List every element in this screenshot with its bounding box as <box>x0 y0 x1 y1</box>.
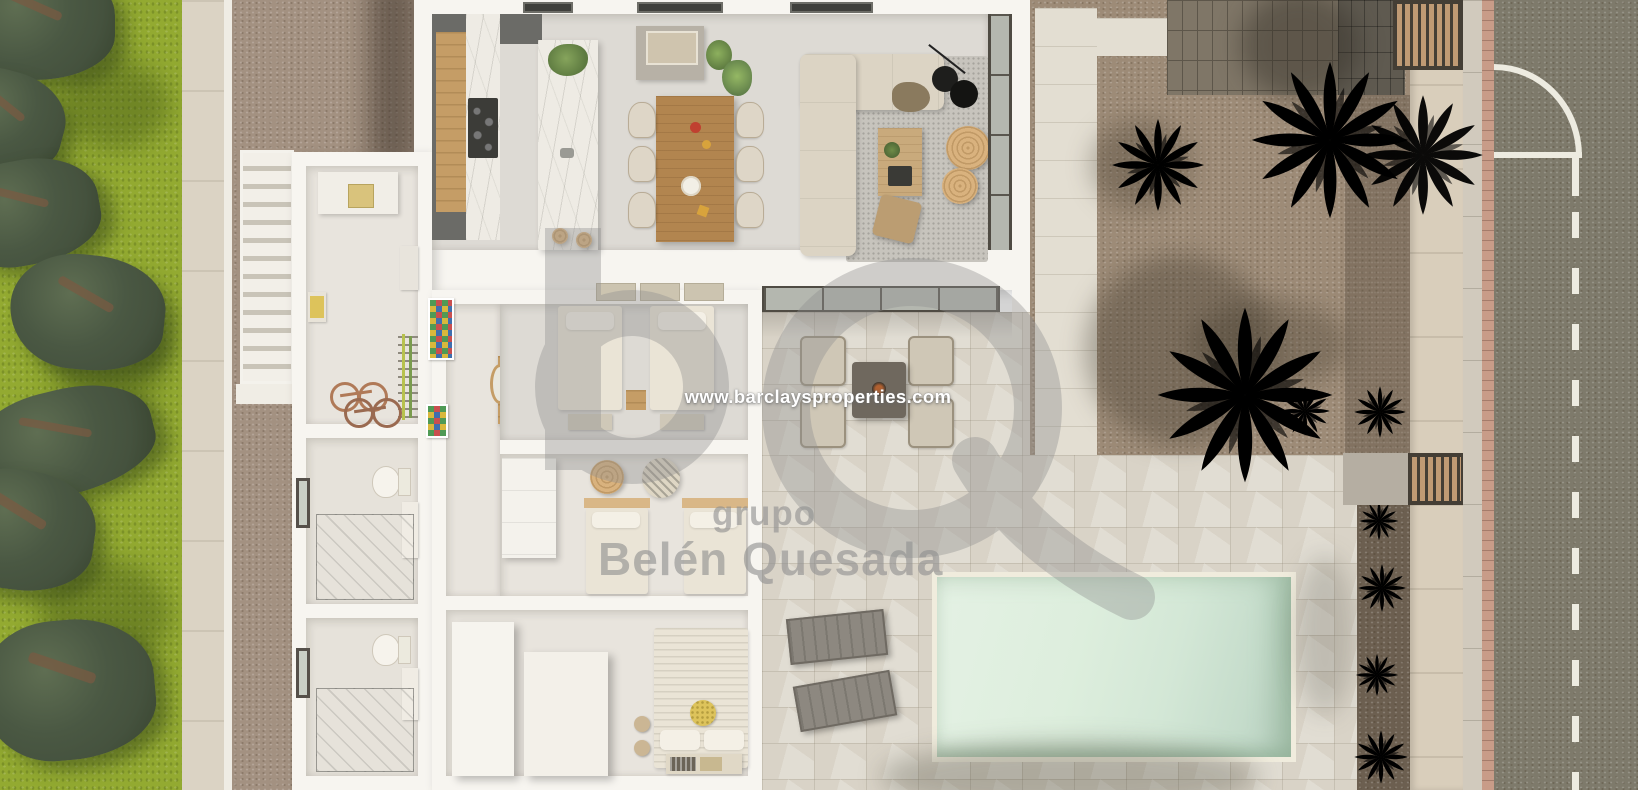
skylight <box>523 2 573 13</box>
shrub <box>1352 384 1408 440</box>
wall-cap-left <box>224 0 232 790</box>
dining-chair <box>736 102 764 138</box>
shrub <box>1354 652 1400 698</box>
toilet-cistern <box>398 468 411 496</box>
road-line-solid <box>1572 158 1579 196</box>
bed-pillow <box>704 730 744 750</box>
bicycle-wheel <box>372 398 402 428</box>
shrub <box>1358 500 1400 542</box>
shrub <box>1356 562 1408 614</box>
ski <box>409 336 412 418</box>
watermark-website: www.barclaysproperties.com <box>656 386 980 408</box>
gate-path-stub2 <box>1097 18 1170 56</box>
floor-lamp-base <box>950 80 978 108</box>
toilet-cistern <box>398 636 411 664</box>
pedestrian-gate <box>1408 453 1465 505</box>
toilet <box>372 634 400 666</box>
coffee-table-plant <box>884 142 900 158</box>
wardrobe-volume <box>452 622 514 776</box>
shrub <box>1352 728 1410 786</box>
jute-pouf <box>942 168 978 204</box>
shower-enclosure <box>316 514 414 600</box>
dining-chair <box>628 102 656 138</box>
folded-blanket <box>670 757 696 771</box>
jute-pouf <box>946 126 990 170</box>
shrub <box>1278 384 1332 438</box>
island-faucet <box>560 148 574 158</box>
gate-entry-pad <box>1343 453 1410 505</box>
skylight <box>790 2 873 13</box>
ski <box>402 334 405 420</box>
road-center-dashes <box>1572 212 1579 790</box>
table-decor <box>690 122 701 133</box>
stair-landing <box>236 384 298 404</box>
watermark-group-label: grupo <box>712 496 816 531</box>
exterior-staircase <box>240 150 294 384</box>
cooktop <box>468 98 498 158</box>
shower-enclosure <box>316 688 414 772</box>
bathroom-1-window <box>296 478 310 528</box>
folded-blanket <box>700 757 722 771</box>
toilet <box>372 466 400 498</box>
bed-pillow <box>660 730 700 750</box>
coffee-table-tray <box>888 166 912 186</box>
table-decor <box>702 140 711 149</box>
round-cushion <box>690 700 716 726</box>
storage-box <box>348 184 374 208</box>
kitchen-wood-units <box>436 32 466 212</box>
corridor-artwork <box>428 298 454 360</box>
dining-chair <box>736 146 764 182</box>
watermark-brand-name: Belén Quesada <box>598 536 943 582</box>
wardrobe-volume <box>524 652 608 776</box>
garage-shelf <box>400 246 418 290</box>
bedside-lamp <box>634 740 650 756</box>
floorplan-render: www.barclaysproperties.com grupo Belén Q… <box>0 0 1638 790</box>
road-entrance-line <box>1494 152 1582 158</box>
sideboard-art <box>646 31 698 65</box>
bicycle-wheel <box>344 398 374 428</box>
corridor-floor <box>446 304 500 596</box>
potted-plant <box>722 60 752 96</box>
sofa-throw <box>892 82 930 112</box>
dining-chair <box>628 146 656 182</box>
bench-cushion <box>310 296 324 318</box>
palm-shadow <box>1295 555 1355 715</box>
palm-tree <box>1108 115 1208 215</box>
palm-tree-overhanging <box>1358 90 1488 220</box>
table-plate <box>681 176 701 196</box>
corridor-artwork <box>426 404 448 438</box>
tree-shadow-on-gravel <box>368 0 418 165</box>
skylight <box>637 2 723 13</box>
bedside-lamp <box>634 716 650 732</box>
driveway-gate <box>1393 0 1463 70</box>
bathroom-2-window <box>296 648 310 698</box>
